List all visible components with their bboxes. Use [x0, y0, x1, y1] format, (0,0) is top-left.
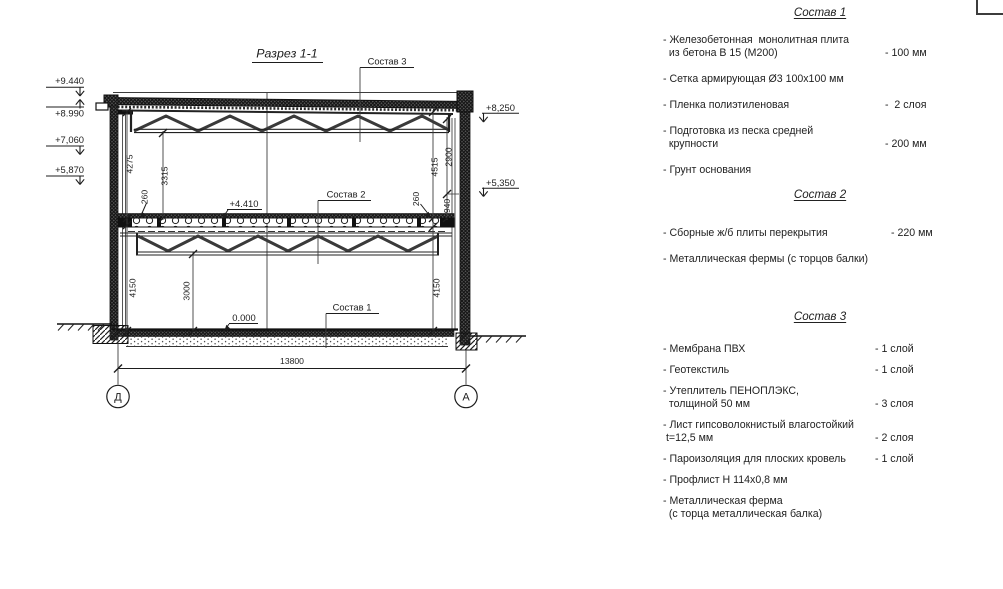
list-item: - Лист гипсоволокнистый влагостойкий t=1… [663, 419, 939, 445]
construction-lines [113, 93, 460, 331]
list-item: - Геотекстиль - 1 слой [663, 364, 939, 377]
right-parapet [457, 91, 473, 112]
elevation-8250: +8,250 [486, 102, 515, 113]
item-label: - Мембрана ПВХ [663, 343, 875, 356]
axis-letter-right: А [462, 392, 470, 404]
dim-4150-right: 4150 [432, 278, 442, 297]
section-drawing-svg: 13800 Д А [0, 0, 660, 584]
callout-sostav-2: Состав 2 [327, 189, 366, 200]
elevation-9440: +9.440 [55, 75, 84, 86]
list-item: - Пленка полиэтиленовая - 2 слоя [663, 99, 939, 112]
list-item: - Металлическая фермы (с торцов балки) [663, 253, 939, 266]
composition-1-heading: Состав 1 [682, 6, 958, 19]
item-label: - Пароизоляция для плоских кровель [663, 453, 875, 466]
title-block-frame-corner [976, 0, 1003, 15]
drawing-callouts: Состав 3 Состав 2 Состав 1 [318, 56, 414, 349]
item-value: - 200 мм [885, 138, 927, 151]
blueprint-sheet: 13800 Д А [0, 0, 1003, 584]
item-value: - 1 слой [875, 343, 914, 356]
ground-floor [112, 330, 458, 347]
item-value: - 1 слой [875, 453, 914, 466]
dim-4150-left: 4150 [128, 278, 138, 297]
dim-3315: 3315 [160, 166, 170, 185]
callout-sostav-1: Состав 1 [333, 302, 372, 313]
composition-section-3: Состав 3 - Мембрана ПВХ - 1 слой - Геоте… [663, 310, 939, 529]
item-label: - Сетка армирующая Ø3 100х100 мм [663, 73, 885, 86]
item-value: - 1 слой [875, 364, 914, 377]
right-wall [452, 112, 470, 345]
elevation-7060: +7,060 [55, 134, 84, 145]
item-label: - Профлист Н 114х0,8 мм [663, 474, 875, 487]
list-item: - Пароизоляция для плоских кровель - 1 с… [663, 453, 939, 466]
item-label: - Утеплитель ПЕНОПЛЭКС, толщиной 50 мм [663, 385, 875, 411]
item-value: - 3 слоя [875, 398, 914, 411]
list-item: - Подготовка из песка средней крупности … [663, 125, 939, 151]
item-label: - Геотекстиль [663, 364, 875, 377]
axis-grid: 13800 Д А [107, 341, 477, 408]
item-label: - Сборные ж/б плиты перекрытия [663, 227, 891, 240]
left-parapet-cap [96, 103, 108, 110]
list-item: - Металлическая ферма (с торца металличе… [663, 495, 939, 521]
item-value: - 2 слоя [885, 99, 926, 112]
dim-4275: 4275 [125, 154, 135, 173]
elevation-5870: +5,870 [55, 164, 84, 175]
dim-4515: 4515 [430, 157, 440, 176]
elevation-4410: +4.410 [230, 198, 259, 209]
item-label: - Металлическая ферма (с торца металличе… [663, 495, 875, 521]
dim-3000: 3000 [182, 281, 192, 300]
list-item: - Утеплитель ПЕНОПЛЭКС, толщиной 50 мм -… [663, 385, 939, 411]
item-label: - Подготовка из песка средней крупности [663, 125, 885, 151]
list-item: - Сборные ж/б плиты перекрытия - 220 мм [663, 227, 939, 240]
dim-13800: 13800 [280, 356, 304, 366]
dim-2900: 2900 [444, 147, 454, 166]
item-label: - Лист гипсоволокнистый влагостойкий t=1… [663, 419, 875, 445]
upper-truss [122, 111, 453, 133]
list-item: - Грунт основания [663, 164, 939, 177]
list-item: - Мембрана ПВХ - 1 слой [663, 343, 939, 356]
item-label: - Железобетонная монолитная плита из бет… [663, 34, 885, 60]
composition-section-2: Состав 2 - Сборные ж/б плиты перекрытия … [663, 188, 939, 279]
item-label: - Грунт основания [663, 164, 885, 177]
elevation-8990: +8.990 [55, 108, 84, 119]
list-item: - Сетка армирующая Ø3 100х100 мм [663, 73, 939, 86]
list-item: - Профлист Н 114х0,8 мм [663, 474, 939, 487]
item-label: - Металлическая фермы (с торцов балки) [663, 253, 891, 266]
composition-2-heading: Состав 2 [682, 188, 958, 201]
drawing-title: Разрез 1-1 [256, 47, 317, 61]
elevation-5350: +5,350 [486, 177, 515, 188]
dim-260-right: 260 [411, 192, 421, 207]
item-value: - 220 мм [891, 227, 933, 240]
floor-truss [120, 233, 452, 255]
elevation-0000: 0.000 [232, 312, 255, 323]
dim-940: 940 [442, 199, 452, 214]
callout-sostav-3: Состав 3 [368, 56, 407, 67]
item-value: - 2 слоя [875, 432, 914, 445]
section-drawing: 13800 Д А [0, 0, 660, 584]
composition-3-heading: Состав 3 [682, 310, 958, 323]
list-item: - Железобетонная монолитная плита из бет… [663, 34, 939, 60]
dim-260-left: 260 [140, 190, 150, 205]
item-label: - Пленка полиэтиленовая [663, 99, 885, 112]
intermediate-floor [118, 214, 454, 232]
drawing-title-group: Разрез 1-1 [252, 47, 323, 63]
item-value: - 100 мм [885, 47, 927, 60]
composition-section-1: Состав 1 - Железобетонная монолитная пли… [663, 6, 939, 190]
axis-letter-left: Д [114, 392, 122, 404]
